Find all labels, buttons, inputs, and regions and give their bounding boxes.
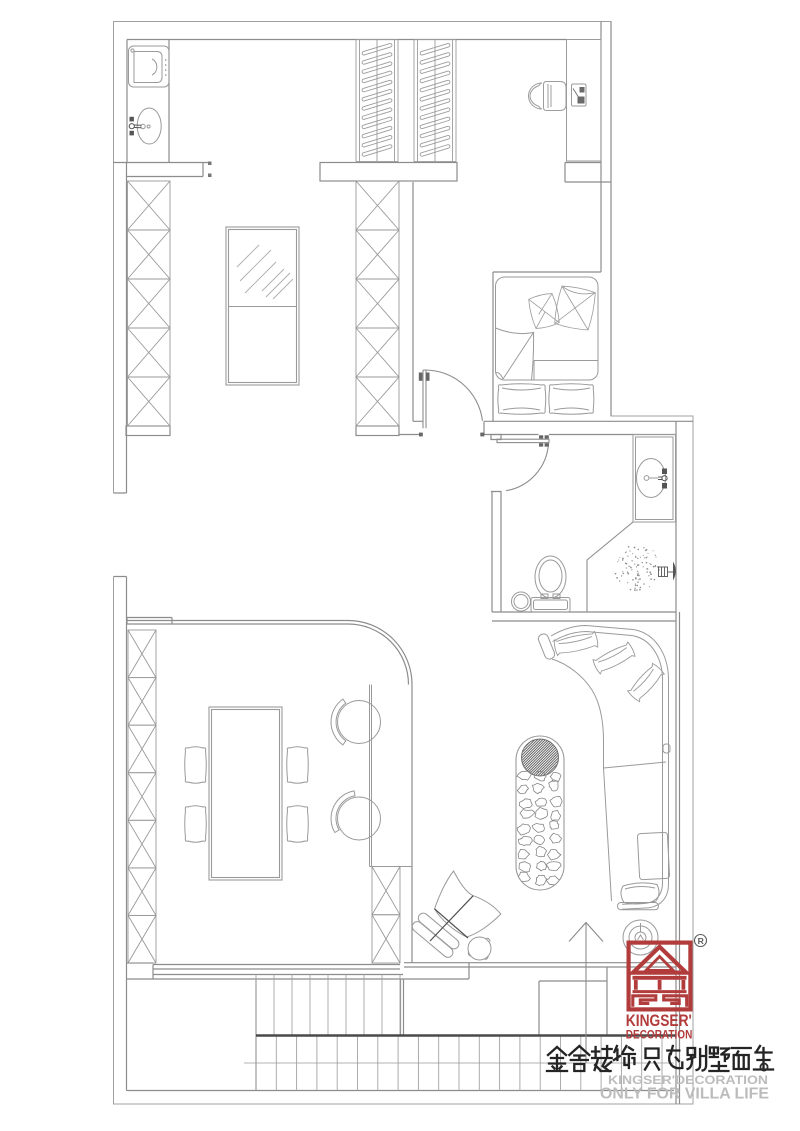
svg-text:DECORATION: DECORATION <box>626 1029 693 1042</box>
svg-text:R: R <box>698 936 705 946</box>
svg-text:KINGSER': KINGSER' <box>626 1012 692 1030</box>
svg-text:ONLY FOR VILLA LIFE: ONLY FOR VILLA LIFE <box>600 1086 769 1103</box>
